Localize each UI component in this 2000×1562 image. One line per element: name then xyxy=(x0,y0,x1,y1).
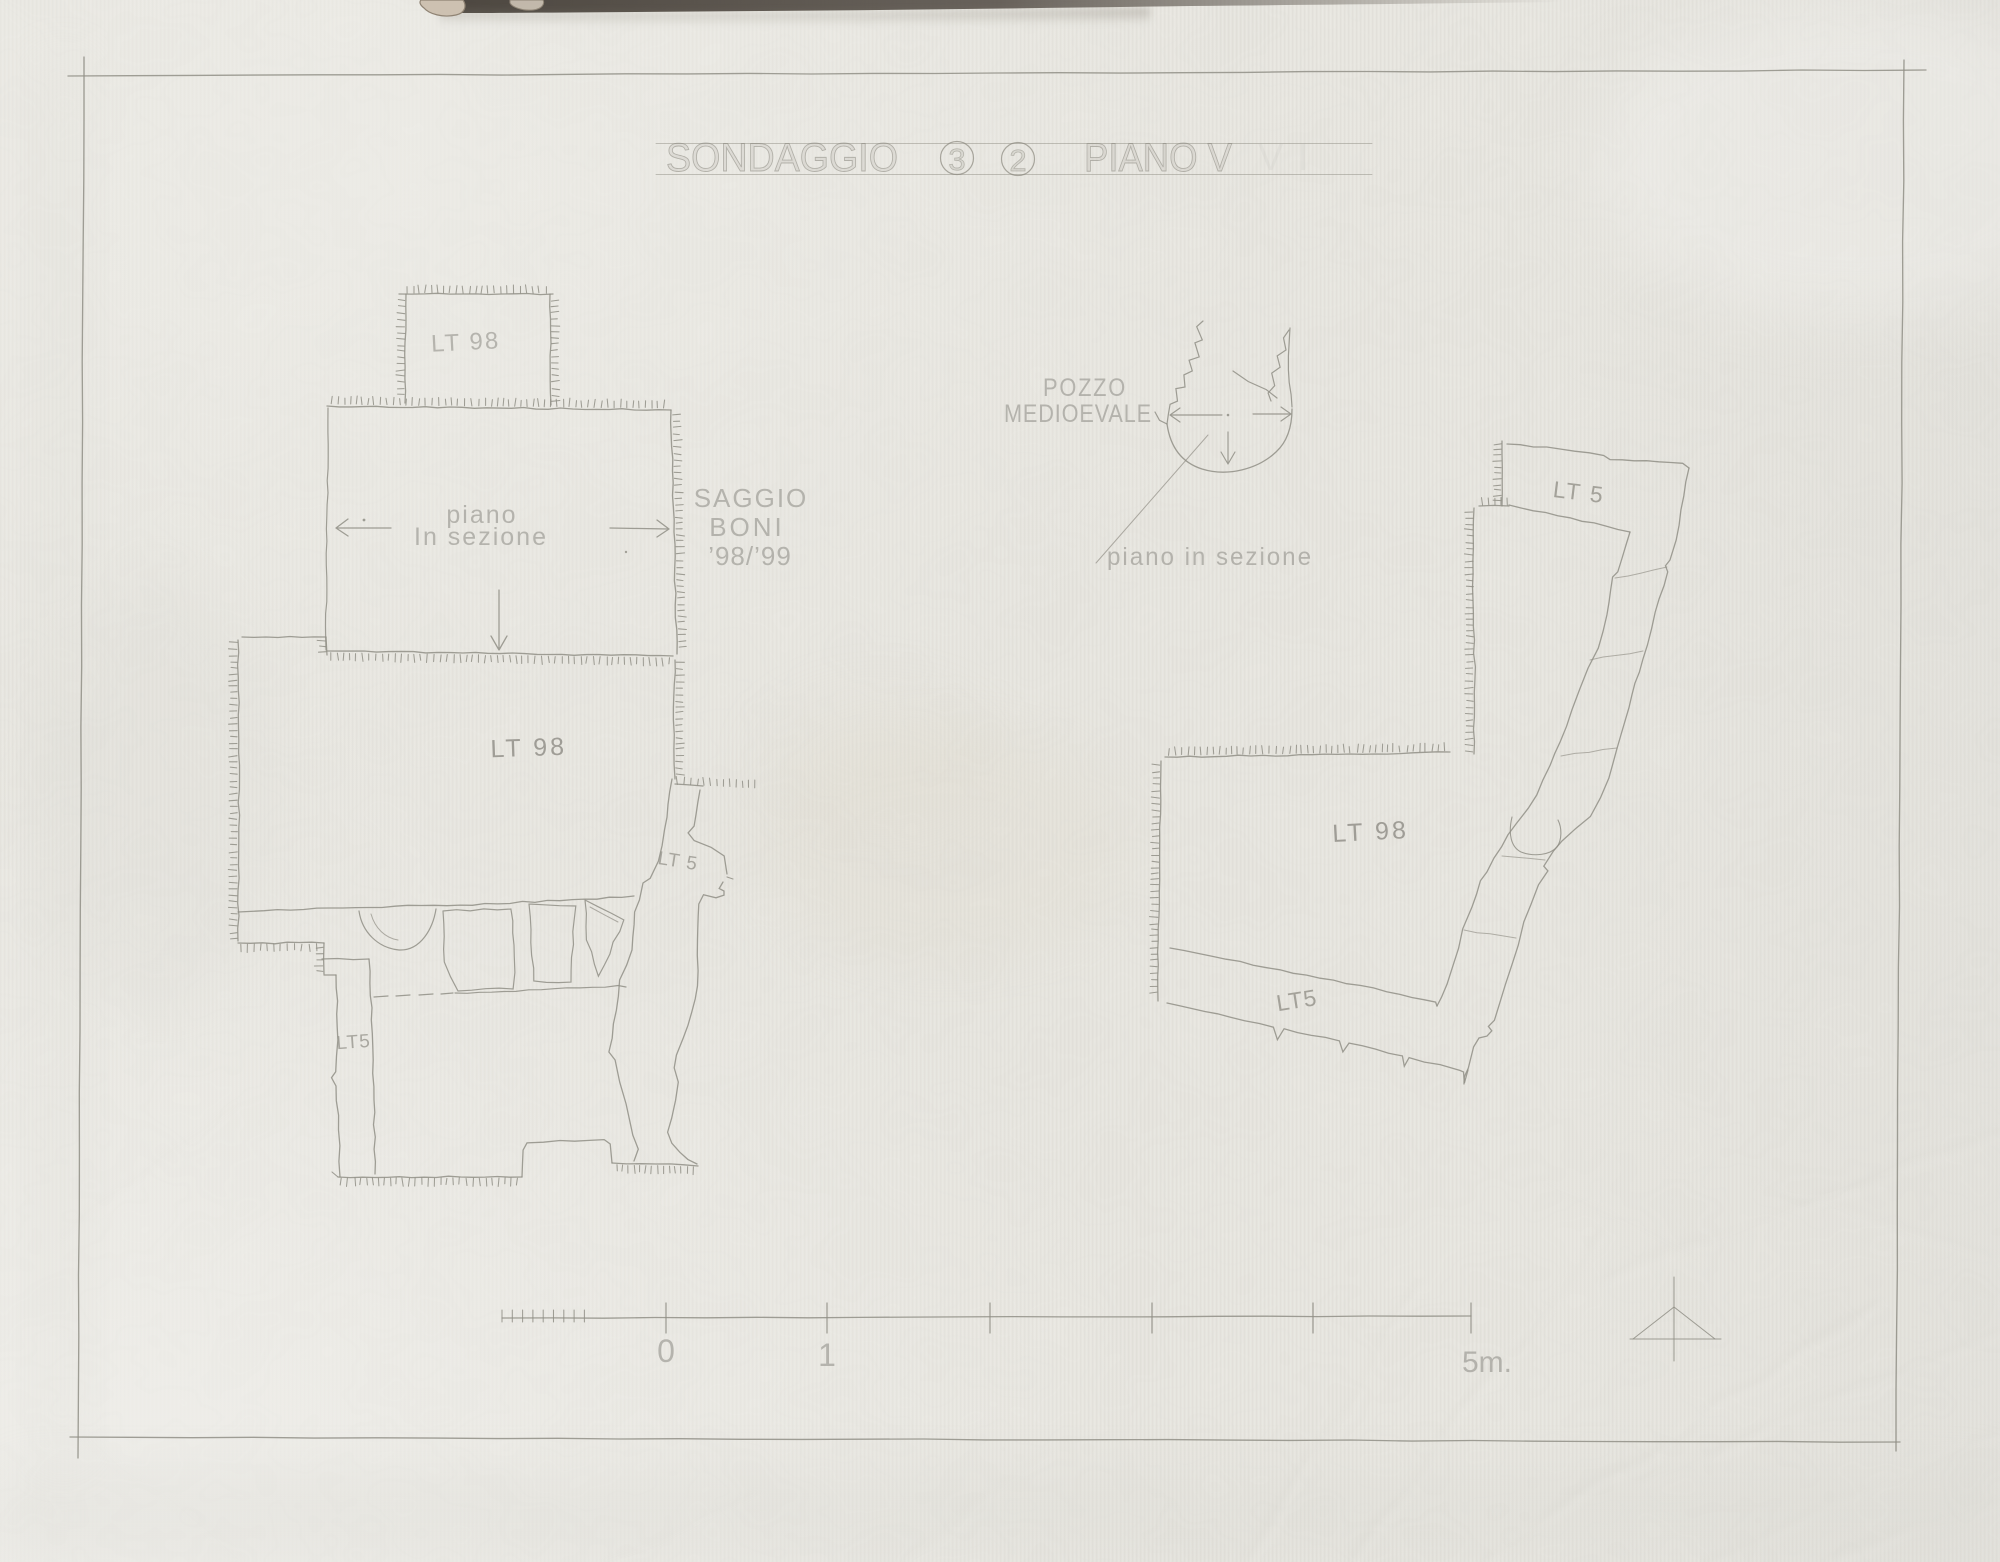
svg-text:5m.: 5m. xyxy=(1462,1346,1512,1379)
svg-text:LT 98: LT 98 xyxy=(1332,816,1410,848)
svg-text:’98/’99: ’98/’99 xyxy=(708,541,792,571)
svg-text:In sezione: In sezione xyxy=(414,523,548,551)
svg-text:3: 3 xyxy=(948,142,965,177)
svg-text:piano in sezione: piano in sezione xyxy=(1107,543,1313,571)
svg-text:0: 0 xyxy=(657,1333,675,1369)
svg-text:POZZO: POZZO xyxy=(1043,374,1127,402)
svg-text:LT 98: LT 98 xyxy=(430,327,500,358)
svg-text:PIANO V: PIANO V xyxy=(1084,136,1232,180)
svg-text:LT5: LT5 xyxy=(336,1031,372,1054)
svg-text:V I: V I xyxy=(1258,137,1310,179)
svg-text:MEDIOEVALE: MEDIOEVALE xyxy=(1004,400,1152,428)
svg-text:SONDAGGIO: SONDAGGIO xyxy=(666,136,898,180)
svg-text:SAGGIO: SAGGIO xyxy=(694,483,809,513)
svg-text:2: 2 xyxy=(1009,143,1026,178)
svg-text:BONI: BONI xyxy=(709,512,785,542)
svg-text:1: 1 xyxy=(818,1337,836,1373)
svg-text:LT 98: LT 98 xyxy=(490,733,568,764)
